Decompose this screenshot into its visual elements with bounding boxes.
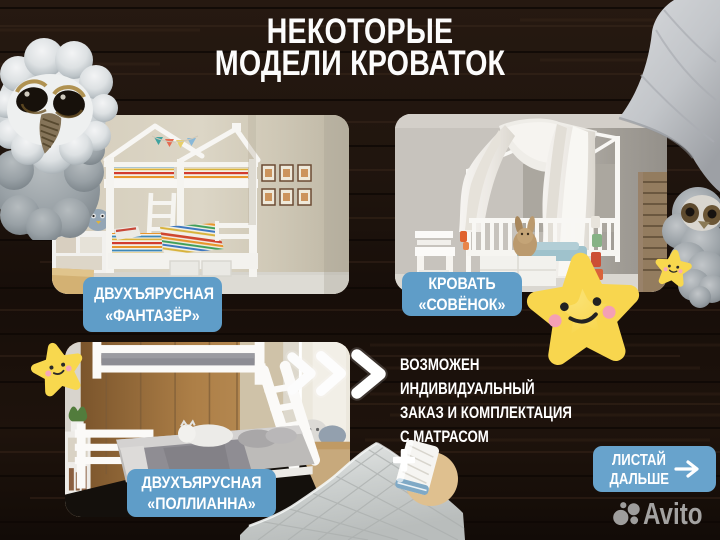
svg-text:Avito: Avito	[643, 496, 703, 530]
